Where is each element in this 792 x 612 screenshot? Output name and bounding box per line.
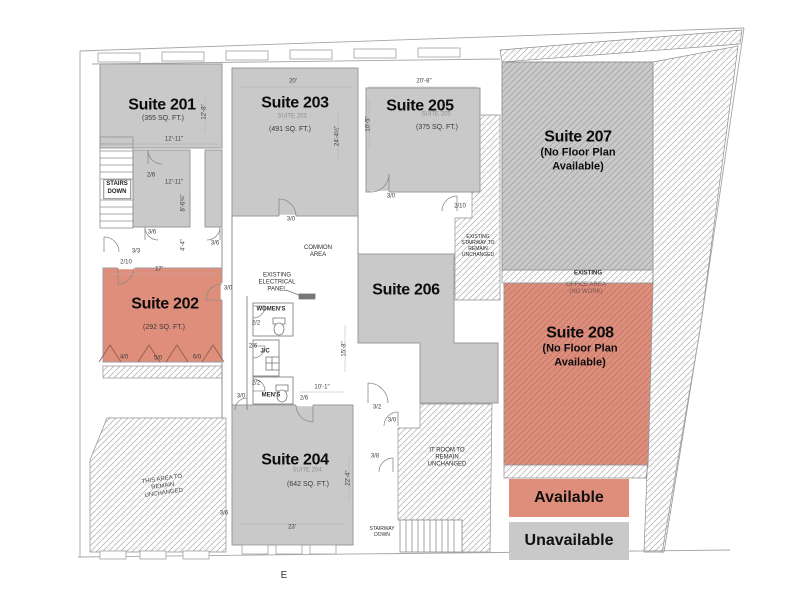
- dim-label: 12'-11": [165, 179, 183, 186]
- stairs-bottom-right: [400, 520, 462, 552]
- dim-label: 2/10: [120, 259, 132, 266]
- stairway-down-label: STAIRWAY DOWN: [369, 527, 394, 539]
- womens-label: WOMEN'S: [256, 306, 285, 313]
- dim-label: 3/0: [287, 216, 295, 223]
- dim-label: 4/0: [120, 354, 128, 361]
- suite-201-annex-a: [133, 150, 190, 227]
- legend-unavailable-label: Unavailable: [525, 532, 614, 550]
- dim-label: 3/6: [211, 240, 219, 247]
- janitor-closet-label: J/C: [260, 348, 269, 355]
- existing-stairway-label: EXISTING STAIRWAY TO REMAIN UNCHANGED: [461, 235, 494, 259]
- suite-206-label: Suite 206: [372, 282, 440, 301]
- suite-202-sqft: (292 SQ. FT.): [143, 324, 185, 332]
- hatch-under-202: [103, 366, 222, 378]
- dim-label: 5/0: [154, 355, 162, 362]
- dim-label: 2/6: [147, 172, 155, 179]
- dim-label: 10'-5": [365, 116, 372, 131]
- dim-label: 15'-8": [341, 341, 348, 356]
- interior-walls: [222, 216, 358, 418]
- dim-label: 3/6: [220, 510, 228, 517]
- suite-205-sqft: (375 SQ. FT.): [416, 124, 458, 132]
- dim-label: 12'-11": [165, 136, 183, 143]
- suite-201-label: Suite 201: [128, 97, 196, 116]
- dim-label: 20'-8": [416, 78, 431, 85]
- legend-unavailable: Unavailable: [509, 522, 629, 560]
- dim-label: 2/6: [249, 343, 257, 350]
- dim-label: 2/6: [300, 395, 308, 402]
- suite-208-note: (No Floor Plan Available): [542, 342, 617, 370]
- it-room-label: IT ROOM TO REMAIN UNCHANGED: [428, 447, 467, 468]
- hatch-bottom-strip: [504, 465, 648, 478]
- dim-label: 6/0: [193, 354, 201, 361]
- electrical-panel-label: EXISTING ELECTRICAL PANEL: [258, 272, 295, 293]
- dim-label: 3/0: [237, 393, 245, 400]
- existing-strip-label: EXISTING: [574, 270, 602, 277]
- suite-207-note: (No Floor Plan Available): [540, 146, 615, 174]
- suite-201-annex-b: [205, 150, 222, 227]
- legend-available: Available: [509, 479, 629, 517]
- dim-label: 23': [288, 524, 296, 531]
- suite-202-area: [103, 268, 222, 362]
- dim-label: 2/2: [252, 380, 260, 387]
- stairs-down-label: STAIRS DOWN: [103, 179, 131, 199]
- dim-label: 4'-4": [180, 239, 187, 251]
- dim-label: 3/8: [371, 453, 379, 460]
- suite-203-label: Suite 203: [261, 95, 329, 114]
- mens-label: MEN'S: [262, 392, 281, 399]
- dim-label: 3/3: [132, 248, 140, 255]
- dim-label: 3/2: [373, 404, 381, 411]
- suite-202-label: Suite 202: [131, 296, 199, 315]
- suite-208-hatch-overlay: [504, 283, 653, 465]
- mop-sink-icon: [266, 357, 279, 370]
- dim-label: 3/6: [148, 229, 156, 236]
- dim-label: 2/2: [252, 320, 260, 327]
- suite-203-sublabel: SUITE 203: [277, 113, 306, 120]
- dim-label: 8'-6¾": [180, 195, 187, 212]
- dim-label: 3/0: [387, 193, 395, 200]
- dim-label: 12'-8": [201, 104, 208, 119]
- suite-203-sqft: (491 SQ. FT.): [269, 126, 311, 134]
- dim-label: 20': [289, 78, 297, 85]
- dim-label: 3/0: [388, 417, 396, 424]
- suite-204-sqft: (642 SQ. FT.): [287, 481, 329, 489]
- suite-205-sublabel: SUITE 205: [421, 111, 450, 118]
- office-area-label: OFFICE AREA (NO WORK): [566, 282, 606, 296]
- suite-204-sublabel: SUITE 204: [292, 467, 321, 474]
- electrical-panel-icon: [299, 294, 315, 299]
- floor-plan: Suite 201 (355 SQ. FT.) Suite 203 SUITE …: [0, 0, 792, 612]
- common-area-label: COMMON AREA: [304, 245, 332, 259]
- suite-208-label: Suite 208: [546, 325, 614, 344]
- dim-label: 22'-4": [345, 470, 352, 485]
- suite-207-label: Suite 207: [544, 129, 612, 148]
- hatch-right-wedge: [644, 46, 738, 552]
- dim-label: 24'-4½": [334, 126, 341, 146]
- dim-label: 17': [155, 266, 163, 273]
- floorplan-drawing: [0, 0, 792, 612]
- east-marker: E: [281, 570, 288, 582]
- suite-201-sqft: (355 SQ. FT.): [142, 115, 184, 123]
- dim-label: 10'-1": [314, 384, 329, 391]
- dim-label: 3/0: [224, 285, 232, 292]
- legend-available-label: Available: [534, 489, 604, 507]
- dim-label: 2/10: [454, 203, 466, 210]
